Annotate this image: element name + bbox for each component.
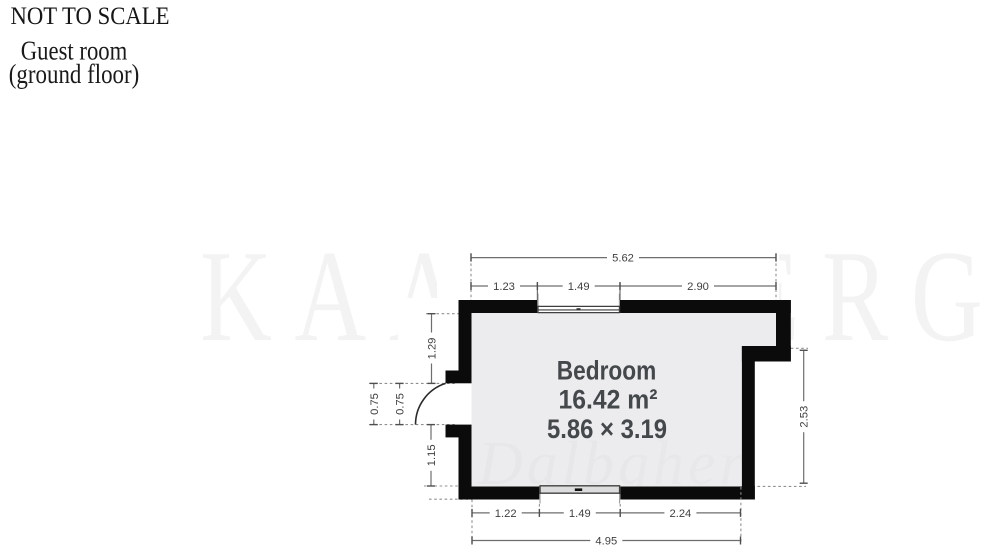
svg-text:0.75: 0.75 (369, 393, 381, 415)
svg-text:4.95: 4.95 (595, 536, 617, 548)
svg-text:16.42 m²: 16.42 m² (559, 385, 658, 415)
svg-text:1.22: 1.22 (495, 508, 517, 520)
svg-text:2.24: 2.24 (670, 508, 692, 520)
svg-text:1.49: 1.49 (569, 508, 591, 520)
svg-text:1.29: 1.29 (427, 338, 439, 360)
svg-text:1.49: 1.49 (568, 281, 590, 293)
svg-text:1.15: 1.15 (426, 444, 438, 466)
svg-text:5.62: 5.62 (612, 253, 634, 265)
svg-text:0.75: 0.75 (395, 393, 407, 415)
svg-text:5.86 × 3.19: 5.86 × 3.19 (547, 414, 667, 444)
svg-text:2.90: 2.90 (687, 281, 709, 293)
svg-text:Bedroom: Bedroom (557, 356, 657, 386)
svg-text:1.23: 1.23 (493, 281, 515, 293)
svg-text:2.53: 2.53 (799, 406, 811, 428)
svg-text:(ground floor): (ground floor) (9, 59, 140, 89)
svg-text:NOT TO SCALE: NOT TO SCALE (11, 3, 170, 30)
